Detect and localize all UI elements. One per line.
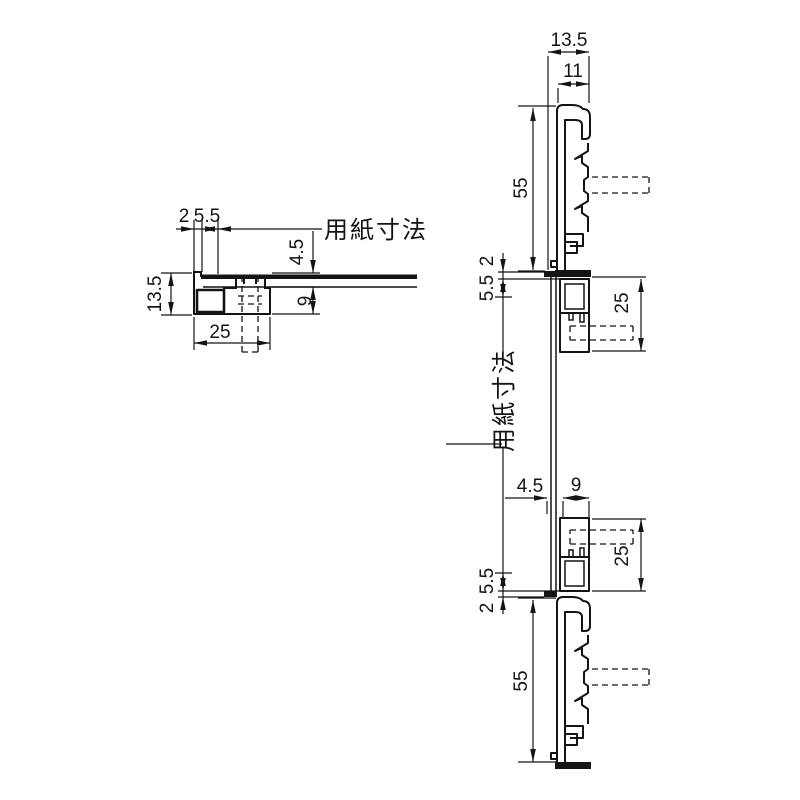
- frame-profile-top: [551, 105, 649, 277]
- arrowhead: [638, 338, 644, 351]
- arrowhead: [500, 597, 506, 610]
- paper-size-label-vertical: 用紙寸法: [491, 348, 518, 452]
- arrowhead: [168, 302, 174, 315]
- paper-sheet-thick-line: [201, 275, 417, 280]
- paper-size-label: 用紙寸法: [324, 217, 428, 244]
- arrowhead: [530, 749, 536, 762]
- dim-text-5-5-bottom: 5.5: [477, 568, 498, 594]
- dim-text-13-5: 13.5: [145, 276, 166, 313]
- arrowhead: [638, 519, 644, 532]
- arrowhead: [638, 279, 644, 292]
- arrowhead: [168, 273, 174, 286]
- dim-text-2: 2: [179, 206, 190, 227]
- inner-box: [197, 290, 224, 312]
- rail-lip-outline: [194, 272, 201, 276]
- dim-text-9: 9: [571, 475, 582, 496]
- dim-text-5-5: 5.5: [194, 206, 220, 227]
- dim-text-4-5: 4.5: [517, 476, 543, 497]
- dim-text-5-5-top: 5.5: [477, 275, 498, 301]
- board-plate: [544, 271, 557, 597]
- right-section-view: 13.5 11 55 2 5.5: [446, 30, 649, 769]
- dim-text-13-5: 13.5: [551, 30, 588, 51]
- holder-bracket-upper: [560, 279, 633, 352]
- arrowhead: [530, 600, 536, 613]
- arrowhead: [181, 226, 194, 232]
- arrowhead: [530, 108, 536, 121]
- dim-text-9: 9: [295, 296, 316, 307]
- arrowhead: [576, 495, 589, 501]
- left-section-view: 2 5.5 用紙寸法 13.5 4.5 9: [145, 206, 428, 352]
- frame-profile-bottom: [551, 597, 649, 769]
- right-view-dimensions: 13.5 11 55 2 5.5: [446, 30, 646, 762]
- arrowhead: [310, 260, 316, 273]
- arrowhead: [558, 81, 571, 87]
- dim-text-4-5: 4.5: [287, 239, 308, 265]
- dim-text-55-top: 55: [511, 177, 532, 198]
- dim-text-2-top: 2: [477, 256, 498, 267]
- dim-text-25: 25: [209, 322, 230, 343]
- dim-text-25-bottom: 25: [612, 545, 633, 566]
- arrowhead: [500, 259, 506, 272]
- arrowhead: [530, 257, 536, 270]
- technical-drawing-page: 2 5.5 用紙寸法 13.5 4.5 9: [0, 0, 800, 800]
- frame-profile-drawing: 2 5.5 用紙寸法 13.5 4.5 9: [0, 0, 800, 800]
- plate-bottom-cap: [544, 591, 557, 597]
- dim-text-55-bottom: 55: [511, 670, 532, 691]
- dim-text-11: 11: [563, 61, 583, 82]
- arrowhead: [218, 226, 231, 232]
- dim-text-25-top: 25: [612, 292, 633, 313]
- arrowhead: [257, 340, 270, 346]
- arrowhead: [563, 495, 576, 501]
- arrowhead: [638, 578, 644, 591]
- arrowhead: [576, 81, 589, 87]
- arrowhead: [194, 340, 207, 346]
- dim-text-2-bottom: 2: [477, 603, 498, 614]
